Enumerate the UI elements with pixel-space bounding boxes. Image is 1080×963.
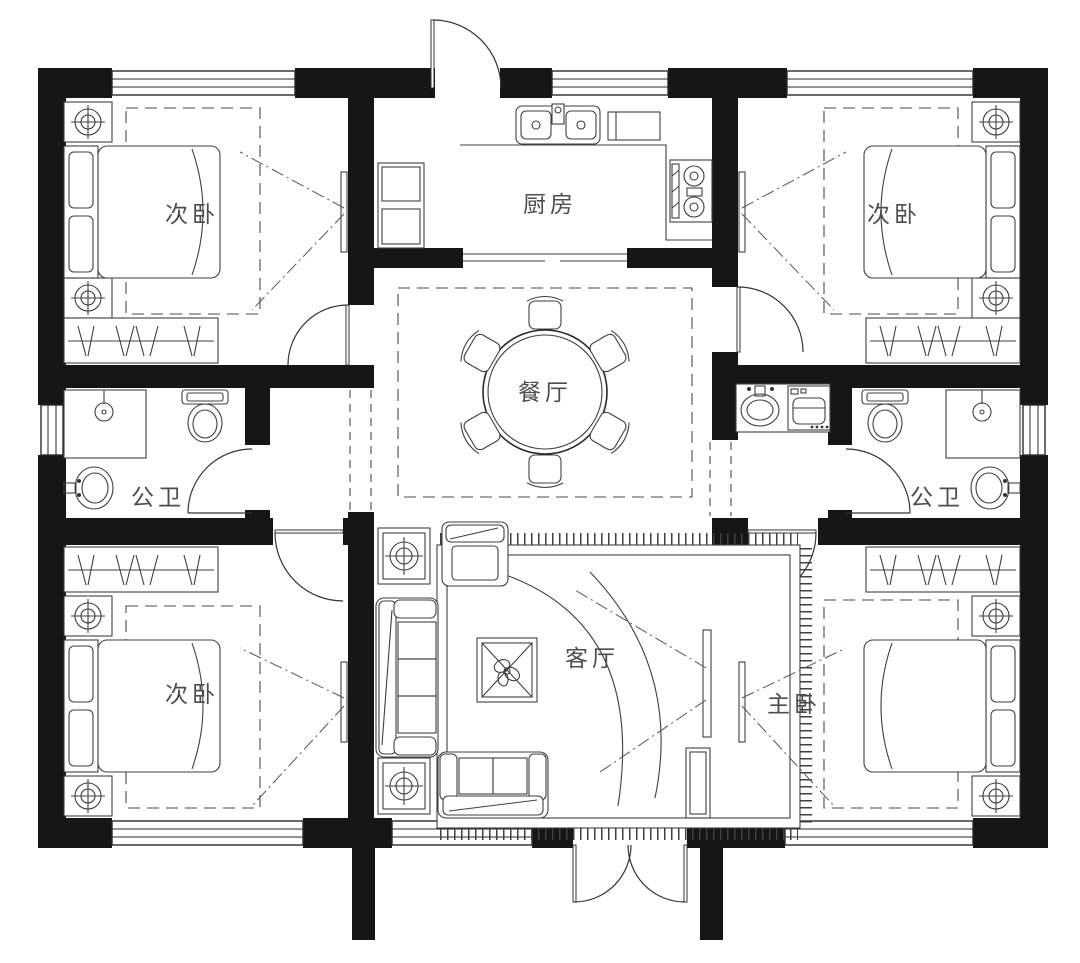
room-label: 公卫 xyxy=(910,485,964,511)
loveseat xyxy=(438,752,548,818)
tv xyxy=(703,630,711,737)
wardrobe xyxy=(64,547,218,592)
nightstand-lamp xyxy=(64,278,112,318)
wardrobe xyxy=(866,547,1020,592)
cutting-board xyxy=(608,112,660,140)
entry-cabinet xyxy=(686,748,710,818)
shower xyxy=(64,390,146,458)
room-label: 主卧 xyxy=(767,692,821,718)
double-bed xyxy=(864,640,1020,772)
window xyxy=(787,71,973,95)
floor-plan: 次卧 xyxy=(0,0,1080,963)
room-label: 客厅 xyxy=(565,646,619,672)
tv xyxy=(739,172,745,252)
wardrobe xyxy=(866,318,1020,363)
room-label: 公卫 xyxy=(131,485,185,511)
nightstand-lamp xyxy=(64,102,112,142)
room-label: 餐厅 xyxy=(518,380,572,406)
end-table-lamp xyxy=(378,528,430,584)
gas-stove xyxy=(670,160,712,222)
nightstand-lamp xyxy=(972,596,1020,636)
stool xyxy=(527,455,563,488)
window xyxy=(1023,405,1045,455)
room-label: 厨房 xyxy=(523,192,577,218)
nightstand-lamp xyxy=(972,278,1020,318)
wardrobe xyxy=(64,318,218,363)
room-label: 次卧 xyxy=(165,202,219,228)
nightstand-lamp xyxy=(64,596,112,636)
room-label: 次卧 xyxy=(165,682,219,708)
washing-machine xyxy=(788,386,830,430)
nightstand-lamp xyxy=(64,776,112,816)
end-table-lamp xyxy=(378,758,430,814)
window xyxy=(112,71,295,95)
stool xyxy=(527,297,563,330)
shower xyxy=(946,390,1020,458)
tv xyxy=(341,662,347,742)
window xyxy=(785,821,973,845)
window xyxy=(41,405,63,455)
window xyxy=(112,821,303,845)
fridge xyxy=(378,163,424,248)
window xyxy=(552,71,668,95)
kitchen-sink xyxy=(516,104,600,144)
room-label: 次卧 xyxy=(867,202,921,228)
armchair xyxy=(442,522,508,586)
three-seat-sofa xyxy=(376,598,438,757)
nightstand-lamp xyxy=(972,776,1020,816)
tv xyxy=(341,172,347,252)
tv xyxy=(739,662,745,742)
coffee-table xyxy=(477,638,537,702)
nightstand-lamp xyxy=(972,102,1020,142)
